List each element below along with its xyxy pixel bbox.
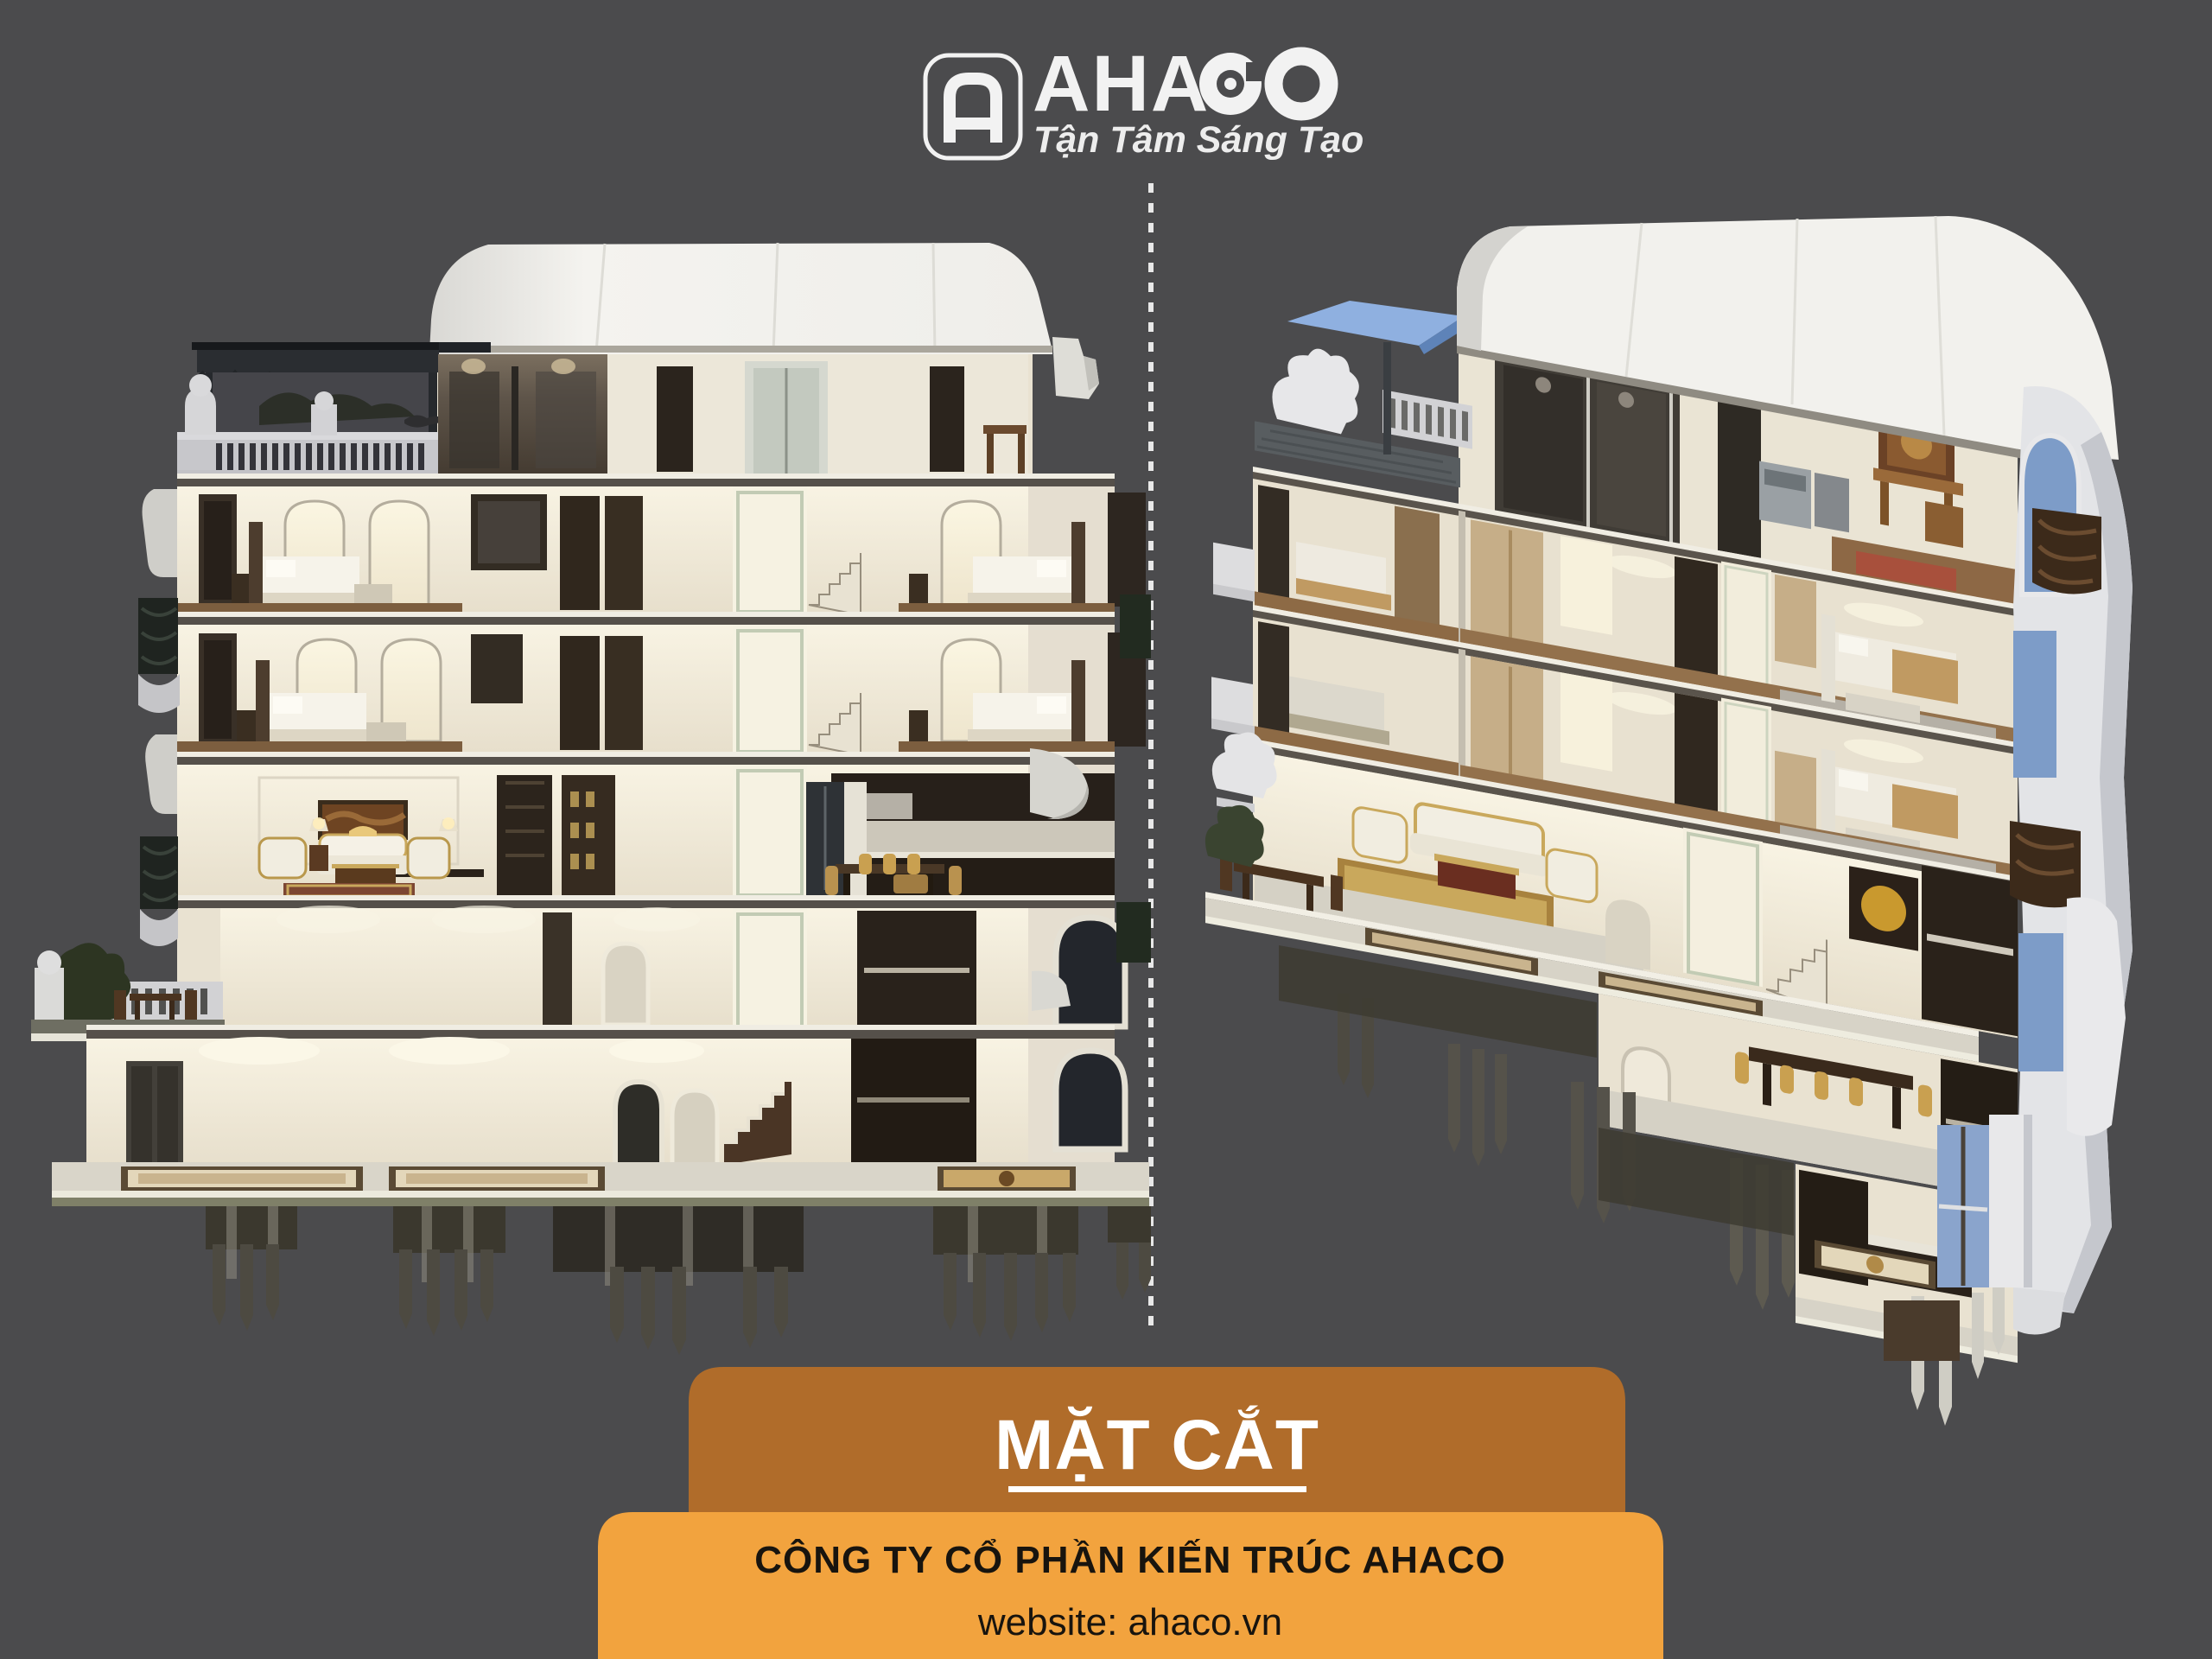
svg-text:AHA: AHA bbox=[1033, 40, 1210, 128]
svg-text:Tận Tâm Sáng Tạo: Tận Tâm Sáng Tạo bbox=[1033, 119, 1363, 161]
svg-text:CÔNG TY CỔ PHẦN KIẾN TRÚC AHAC: CÔNG TY CỔ PHẦN KIẾN TRÚC AHACO bbox=[754, 1537, 1505, 1581]
svg-text:MẶT CẮT: MẶT CẮT bbox=[995, 1406, 1319, 1484]
svg-text:website: ahaco.vn: website: ahaco.vn bbox=[977, 1601, 1282, 1643]
